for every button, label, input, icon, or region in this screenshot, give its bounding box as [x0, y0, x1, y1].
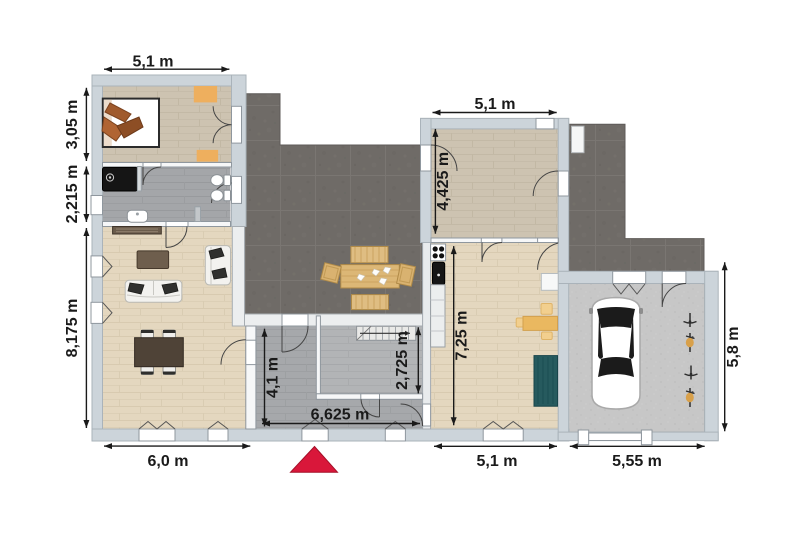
svg-text:5,1 m: 5,1 m — [477, 453, 518, 470]
svg-text:5,8 m: 5,8 m — [725, 327, 742, 368]
svg-text:2,215 m: 2,215 m — [64, 165, 81, 224]
svg-text:5,55 m: 5,55 m — [612, 453, 662, 470]
svg-text:6,0 m: 6,0 m — [148, 453, 189, 470]
svg-text:4,425 m: 4,425 m — [435, 152, 452, 211]
svg-text:5,1 m: 5,1 m — [475, 96, 516, 113]
svg-text:5,1 m: 5,1 m — [133, 54, 174, 71]
svg-text:6,625 m: 6,625 m — [311, 407, 370, 424]
svg-text:4,1 m: 4,1 m — [265, 357, 282, 398]
svg-text:8,175 m: 8,175 m — [64, 299, 81, 358]
svg-text:7,25 m: 7,25 m — [454, 311, 471, 361]
svg-text:2,725 m: 2,725 m — [394, 331, 411, 390]
svg-text:3,05 m: 3,05 m — [64, 100, 81, 150]
